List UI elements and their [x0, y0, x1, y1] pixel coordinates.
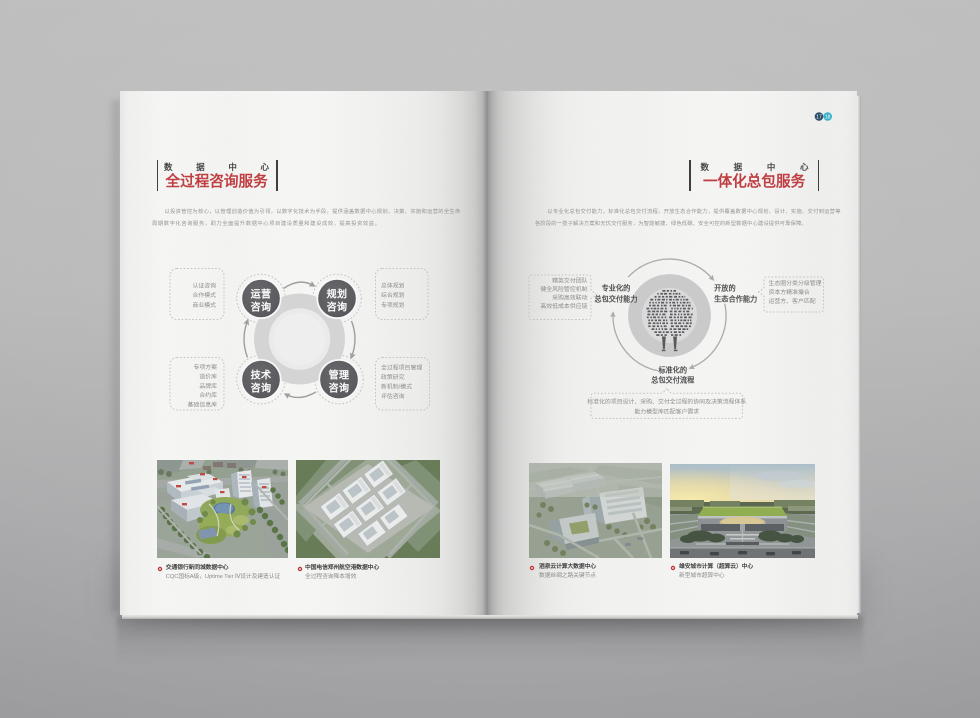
svg-text:规划: 规划 — [327, 288, 348, 301]
svg-text:总体规划: 总体规划 — [381, 281, 405, 289]
svg-text:运营: 运营 — [251, 288, 272, 301]
svg-text:技术: 技术 — [251, 369, 272, 382]
svg-text:合作模式: 合作模式 — [192, 291, 216, 299]
svg-text:专业化的: 专业化的 — [602, 284, 631, 293]
svg-text:开放的: 开放的 — [714, 284, 736, 293]
svg-text:评估咨询: 评估咨询 — [381, 392, 405, 400]
svg-text:造价库: 造价库 — [199, 372, 217, 380]
svg-text:资本方精准撮合: 资本方精准撮合 — [769, 288, 810, 296]
svg-text:咨询: 咨询 — [329, 382, 350, 395]
svg-text:认证咨询: 认证咨询 — [192, 281, 216, 289]
svg-text:总包交付流程: 总包交付流程 — [651, 376, 695, 385]
svg-text:总包交付能力: 总包交付能力 — [594, 294, 637, 303]
svg-text:采购高效联动: 采购高效联动 — [552, 294, 587, 302]
svg-text:新机制/模式: 新机制/模式 — [381, 383, 412, 391]
svg-text:政策研究: 政策研究 — [381, 373, 405, 381]
svg-text:标准化的项目设计、采购、交付全过程的协同及决策流程体系: 标准化的项目设计、采购、交付全过程的协同及决策流程体系 — [587, 397, 746, 405]
svg-text:全过程项目管理: 全过程项目管理 — [381, 364, 422, 372]
svg-text:管理: 管理 — [329, 369, 350, 382]
svg-text:咨询: 咨询 — [251, 301, 272, 314]
svg-text:精英交付团队: 精英交付团队 — [552, 276, 587, 284]
svg-text:咨询: 咨询 — [327, 301, 348, 314]
svg-text:专项方案: 专项方案 — [193, 363, 217, 371]
svg-text:基础信息库: 基础信息库 — [188, 401, 218, 409]
svg-text:品牌库: 品牌库 — [199, 382, 217, 390]
svg-text:运营方、客户匹配: 运营方、客户匹配 — [769, 297, 816, 305]
svg-text:高效低成本供应链: 高效低成本供应链 — [540, 302, 587, 310]
svg-text:商业模式: 商业模式 — [192, 301, 216, 309]
svg-text:能力模型库匹配客户需求: 能力模型库匹配客户需求 — [634, 407, 699, 415]
svg-text:18: 18 — [825, 114, 831, 120]
svg-text:标准化的: 标准化的 — [657, 365, 687, 374]
svg-text:健全风险管控机制: 健全风险管控机制 — [540, 285, 587, 293]
svg-text:生态合作能力: 生态合作能力 — [714, 294, 757, 303]
svg-text:专项规划: 专项规划 — [381, 301, 405, 309]
svg-text:咨询: 咨询 — [251, 382, 272, 395]
svg-text:综合规划: 综合规划 — [381, 291, 405, 299]
svg-text:17: 17 — [816, 114, 822, 120]
svg-text:合约库: 合约库 — [199, 391, 217, 399]
svg-text:生态圈分类分级管理: 生态圈分类分级管理 — [769, 279, 822, 287]
